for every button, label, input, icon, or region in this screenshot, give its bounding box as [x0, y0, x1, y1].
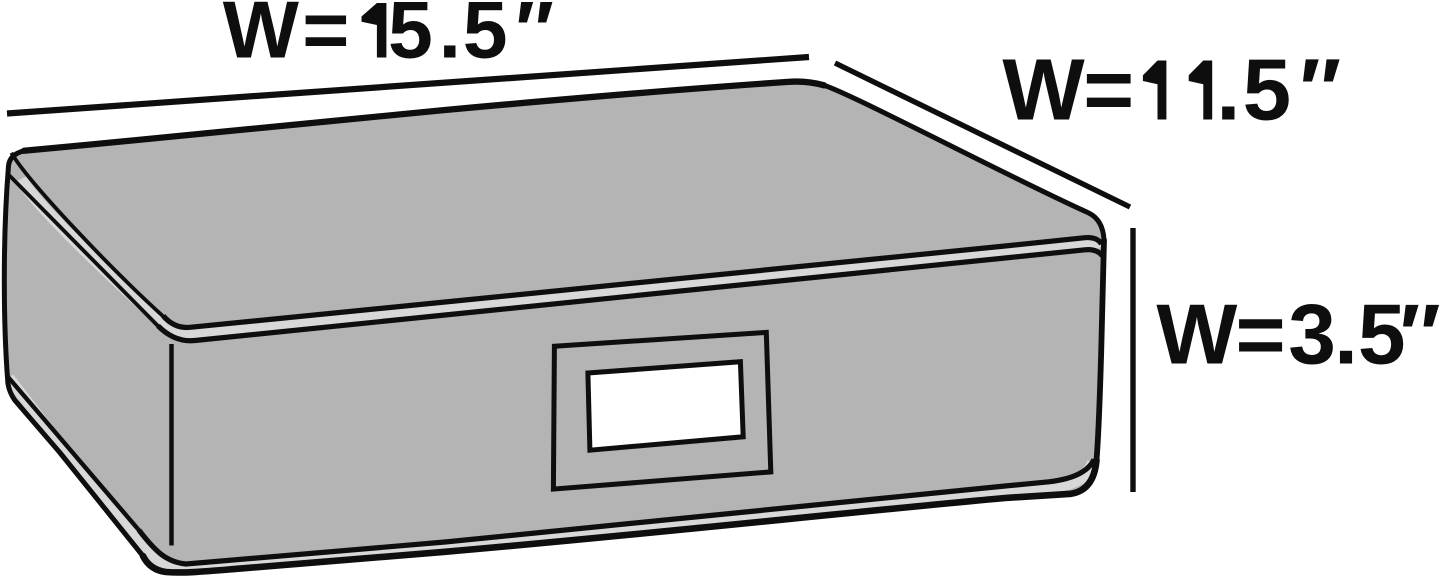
- svg-text:.: .: [1334, 287, 1358, 383]
- svg-text:5: 5: [1243, 42, 1292, 139]
- svg-text:5: 5: [388, 0, 433, 76]
- svg-text:=: =: [1236, 287, 1286, 383]
- svg-text:″: ″: [1400, 287, 1441, 383]
- svg-text:W: W: [1156, 287, 1237, 383]
- svg-text:W: W: [223, 0, 300, 76]
- svg-text:.: .: [439, 0, 461, 76]
- svg-text:.: .: [1216, 42, 1240, 139]
- svg-text:=: =: [1083, 42, 1134, 139]
- svg-text:W: W: [1002, 42, 1085, 139]
- svg-text:3: 3: [1288, 287, 1336, 383]
- svg-text:5: 5: [1358, 287, 1406, 383]
- svg-text:″: ″: [1299, 42, 1341, 139]
- svg-text:″: ″: [515, 0, 554, 76]
- svg-text:=: =: [302, 0, 349, 76]
- svg-text:5: 5: [463, 0, 508, 76]
